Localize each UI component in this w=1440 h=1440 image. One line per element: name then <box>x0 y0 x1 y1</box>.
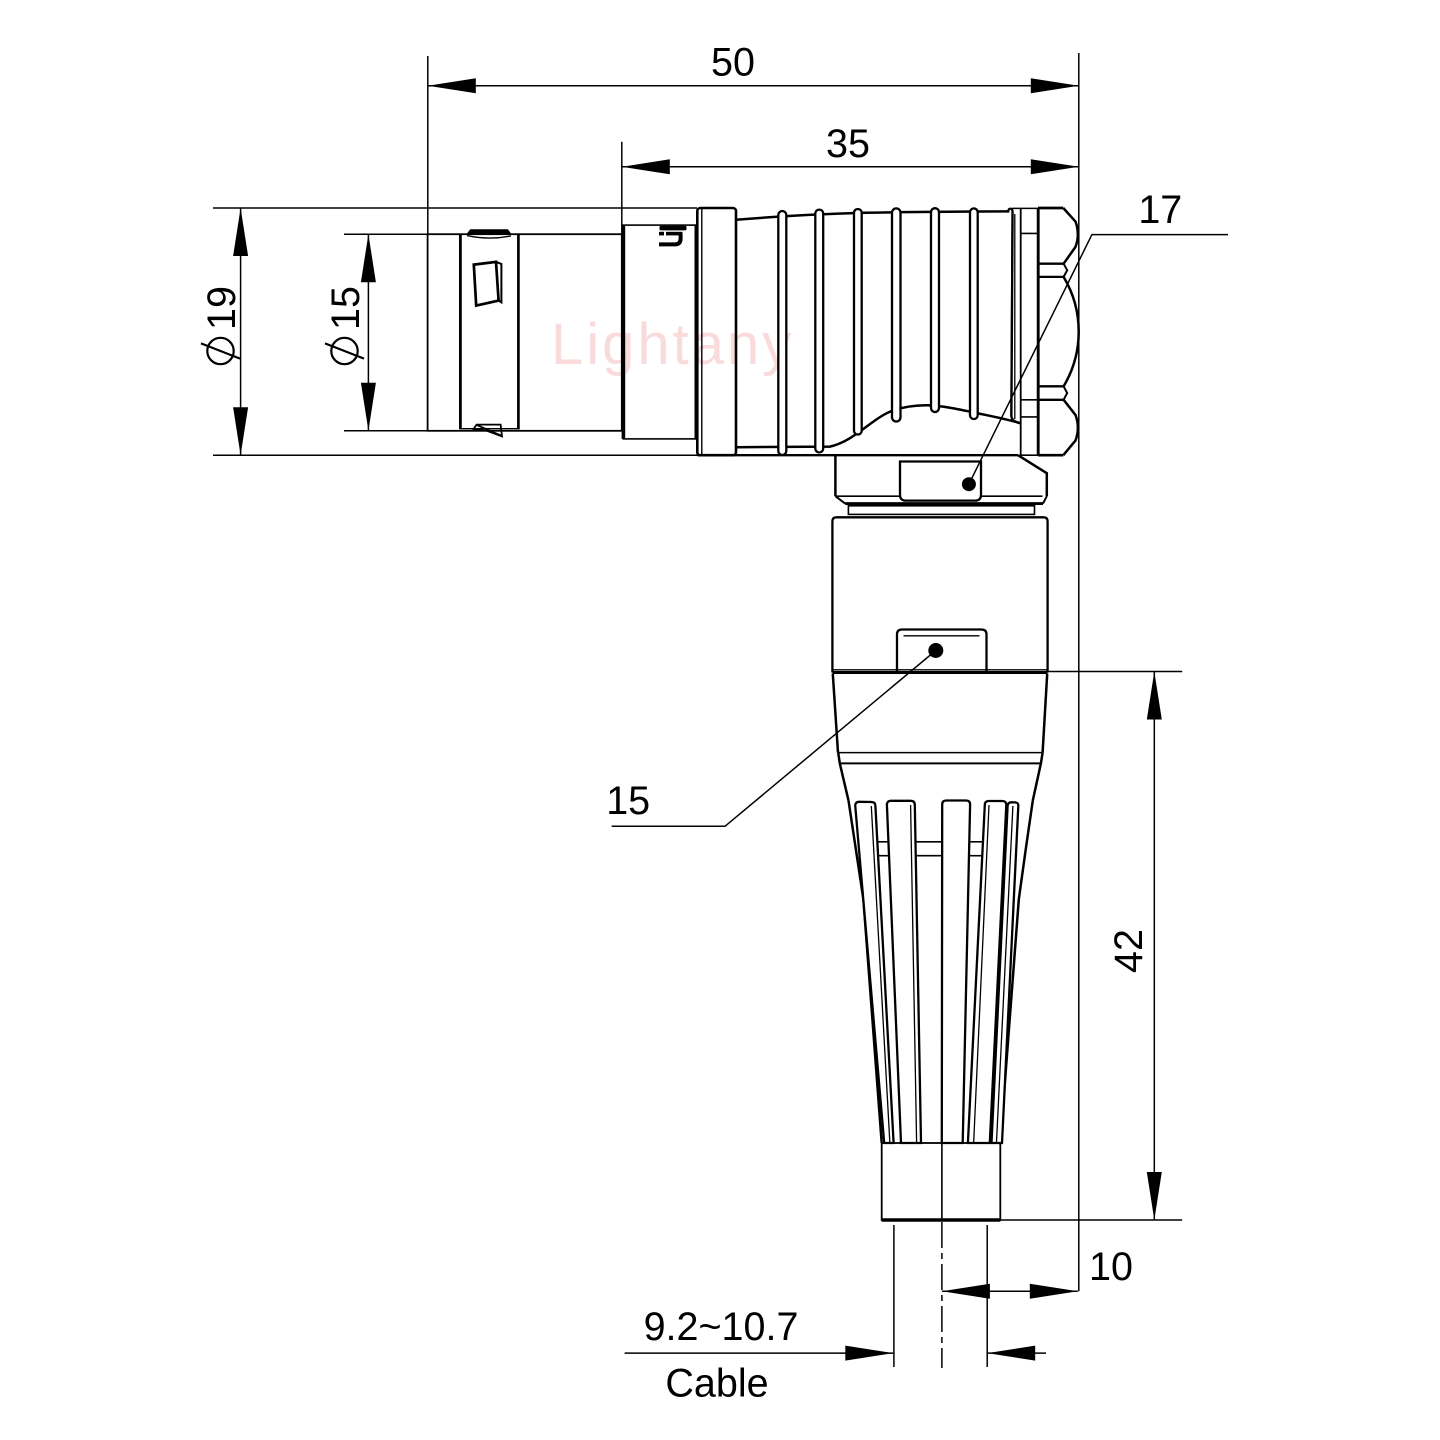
svg-text:35: 35 <box>826 122 870 166</box>
svg-text:19: 19 <box>200 286 244 330</box>
svg-text:15: 15 <box>606 779 650 823</box>
svg-text:50: 50 <box>711 40 755 84</box>
svg-text:Lightany: Lightany <box>551 312 794 377</box>
svg-text:9.2~10.7: 9.2~10.7 <box>644 1305 799 1349</box>
svg-text:42: 42 <box>1107 929 1151 973</box>
svg-text:17: 17 <box>1138 188 1182 232</box>
svg-text:Cable: Cable <box>665 1362 768 1406</box>
svg-text:15: 15 <box>324 286 368 330</box>
svg-text:10: 10 <box>1089 1245 1133 1289</box>
